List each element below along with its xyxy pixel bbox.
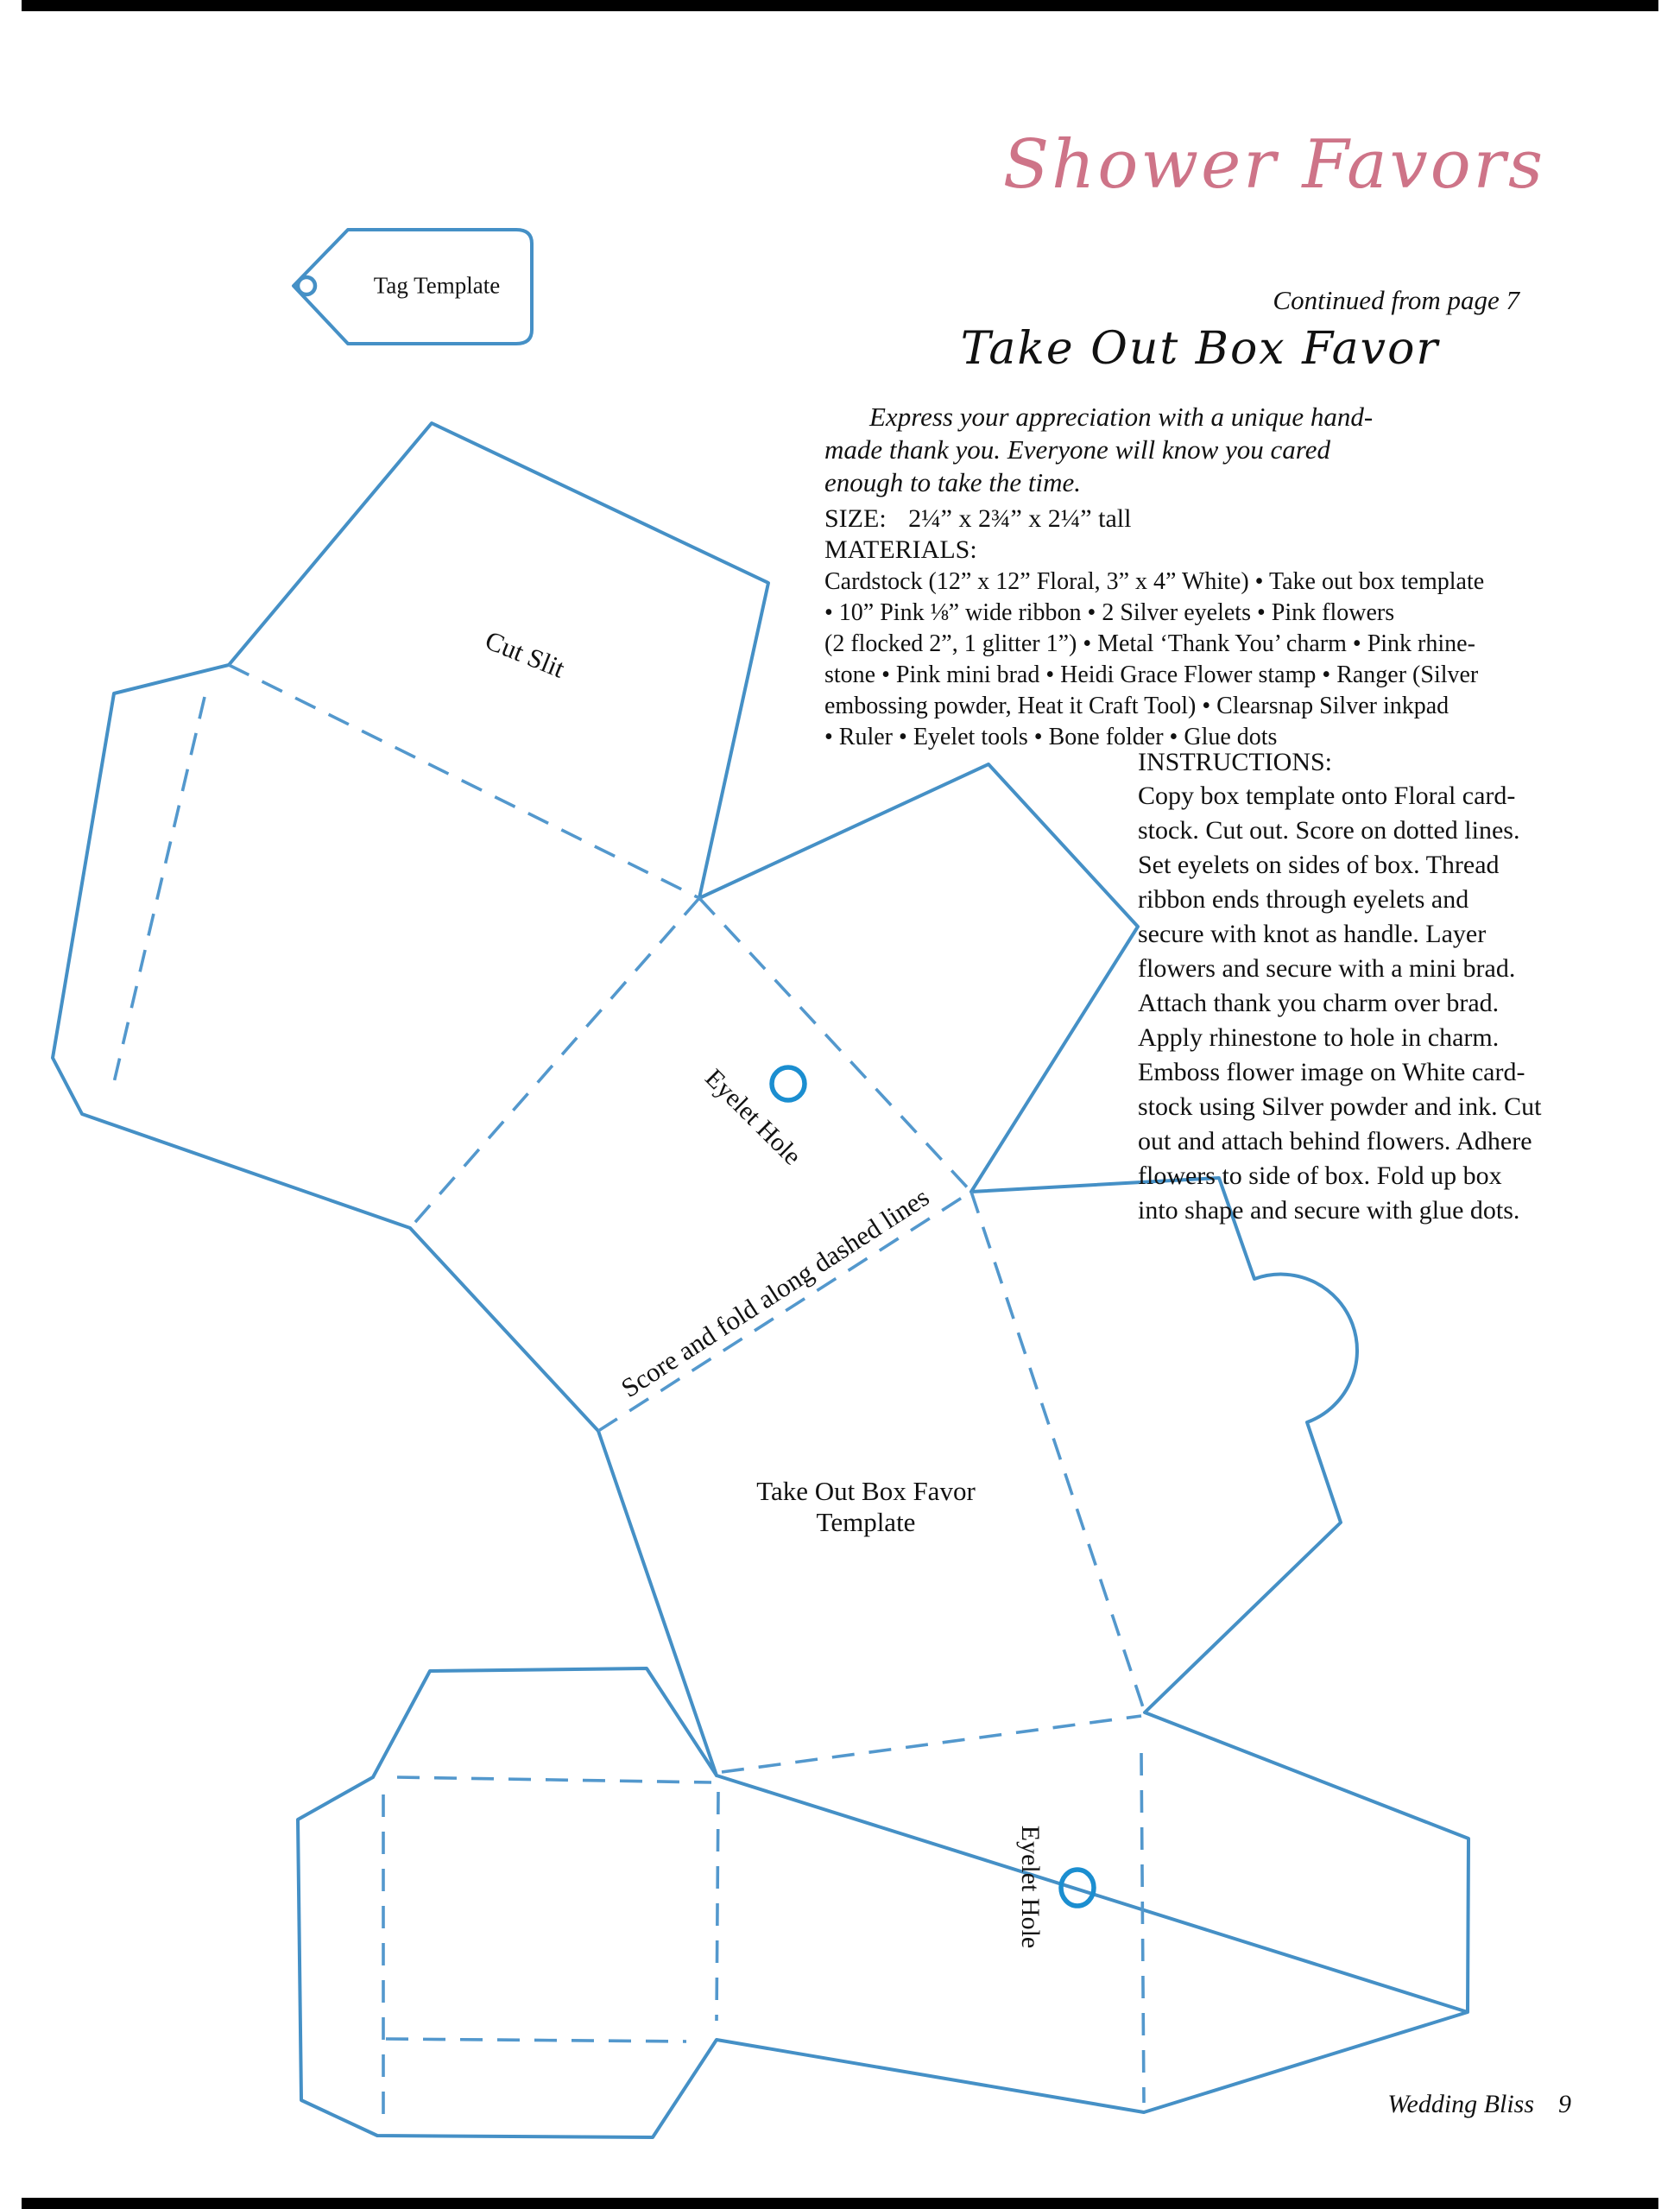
instructions-line: out and attach behind flowers. Adhere [1138,1124,1587,1159]
instructions-text: Copy box template onto Floral card- stoc… [1138,779,1587,1228]
eyelet-hole-mid-icon [772,1067,805,1100]
materials-line: embossing powder, Heat it Craft Tool) • … [824,691,1584,722]
eyelet-hole-bottom-label: Eyelet Hole [1015,1826,1045,1948]
materials-list: Cardstock (12” x 12” Floral, 3” x 4” Whi… [824,566,1584,753]
page-footer: Wedding Bliss9 [1295,2090,1571,2119]
footer-page-number: 9 [1558,2090,1571,2118]
size-label: SIZE: [824,504,887,533]
instructions-line: Emboss flower image on White card- [1138,1055,1587,1090]
article-title: Take Out Box Favor [855,323,1545,375]
instructions-line: Attach thank you charm over brad. [1138,986,1587,1021]
materials-line: • 10” Pink ⅛” wide ribbon • 2 Silver eye… [824,598,1584,629]
instructions-line: flowers and secure with a mini brad. [1138,952,1587,986]
intro-line: Express your appreciation with a unique … [824,401,1558,434]
template-caption: Take Out Box Favor Template [756,1476,976,1538]
template-caption-line: Take Out Box Favor [756,1476,976,1507]
size-value: 2¼” x 2¾” x 2¼” tall [908,504,1131,533]
size-line: SIZE: 2¼” x 2¾” x 2¼” tall [824,504,1131,534]
materials-line: Cardstock (12” x 12” Floral, 3” x 4” Whi… [824,566,1584,598]
page-title: Shower Favors [941,126,1545,204]
template-caption-line: Template [756,1507,976,1538]
instructions-line: into shape and secure with glue dots. [1138,1193,1587,1228]
instructions-line: stock. Cut out. Score on dotted lines. [1138,813,1587,848]
instructions-line: stock using Silver powder and ink. Cut [1138,1090,1587,1124]
instructions-line: Copy box template onto Floral card- [1138,779,1587,813]
footer-magazine-title: Wedding Bliss [1387,2090,1534,2118]
instructions-heading: INSTRUCTIONS: [1138,748,1332,777]
magazine-page: Shower Favors Continued from page 7 Take… [0,0,1680,2209]
instructions-line: ribbon ends through eyelets and [1138,883,1587,917]
materials-line: (2 flocked 2”, 1 glitter 1”) • Metal ‘Th… [824,629,1584,660]
instructions-line: flowers to side of box. Fold up box [1138,1159,1587,1193]
tag-hole-icon [298,277,315,294]
instructions-line: secure with knot as handle. Layer [1138,917,1587,952]
materials-heading: MATERIALS: [824,535,977,565]
tag-template-label: Tag Template [374,273,500,300]
intro-line: made thank you. Everyone will know you c… [824,434,1558,466]
continued-note: Continued from page 7 [950,285,1519,316]
materials-line: stone • Pink mini brad • Heidi Grace Flo… [824,660,1584,691]
intro-line: enough to take the time. [824,466,1558,499]
instructions-line: Apply rhinestone to hole in charm. [1138,1021,1587,1055]
intro-paragraph: Express your appreciation with a unique … [824,401,1558,499]
instructions-line: Set eyelets on sides of box. Thread [1138,848,1587,883]
